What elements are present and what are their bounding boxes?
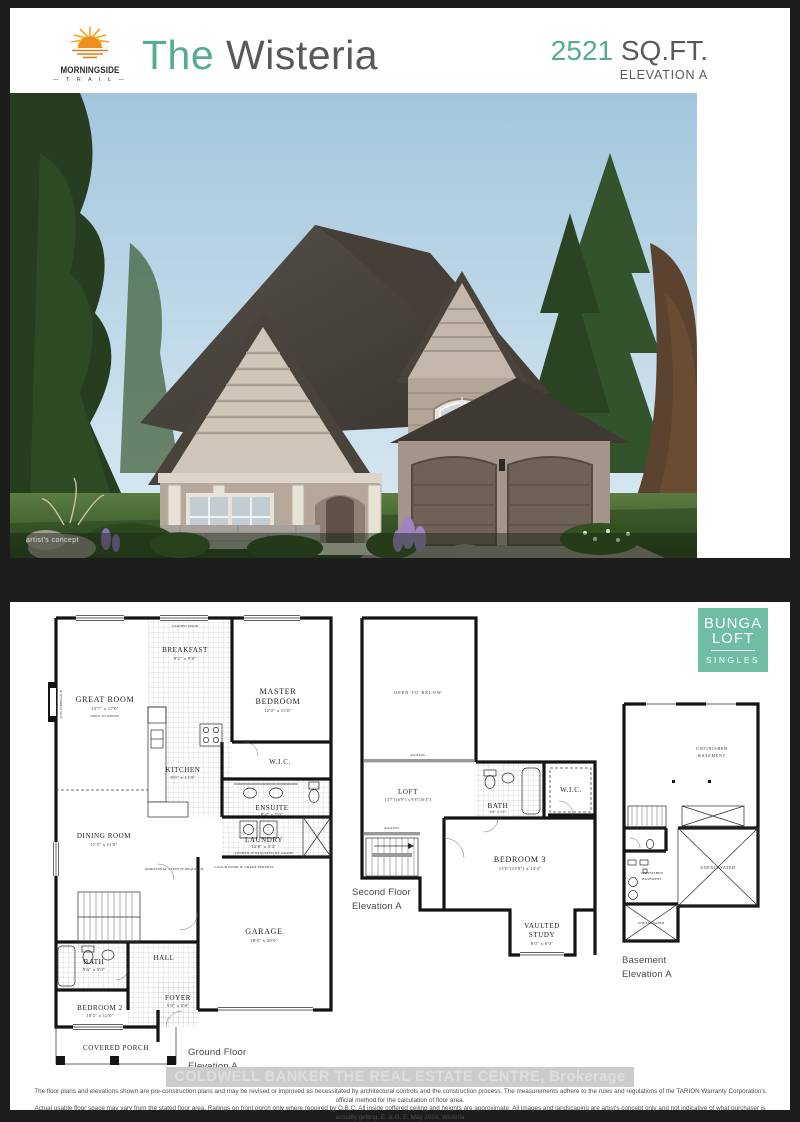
elevation-label: ELEVATION A — [551, 68, 708, 82]
disclaimer-text: The floor plans and elevations shown are… — [30, 1088, 770, 1122]
basement-caption: BasementElevation A — [622, 954, 672, 983]
wic2-label: W.I.C. — [560, 786, 582, 794]
main-stairs — [78, 892, 140, 942]
master-bedroom-label: MASTER — [260, 687, 297, 696]
unfinished-basement-label: UNFINISHED — [696, 746, 728, 751]
garage-label: GARAGE — [245, 927, 283, 936]
svg-text:8'0" x 6'0": 8'0" x 6'0" — [531, 941, 554, 946]
svg-text:13'7" x 17'0": 13'7" x 17'0" — [91, 706, 119, 711]
badge-line1: BUNGA — [704, 616, 762, 631]
hall-label: HALL — [153, 954, 174, 962]
great-room-label: GREAT ROOM — [76, 695, 135, 704]
svg-text:RAILING: RAILING — [384, 826, 400, 830]
loft-label: LOFT — [398, 788, 418, 796]
foyer-label: FOYER — [165, 994, 191, 1002]
utility-fixtures — [628, 839, 654, 899]
steps-note: ADDITIONAL STEPS IF REQUIRED — [144, 867, 203, 871]
porch-label: COVERED PORCH — [83, 1044, 149, 1052]
svg-text:BEDROOM: BEDROOM — [256, 697, 301, 706]
logo-trail-text: — T R A I L — — [50, 77, 130, 83]
badge-divider — [711, 650, 755, 651]
unexcavated-label: UNEXCAVATED — [700, 865, 735, 870]
page-title: The Wisteria — [142, 32, 378, 79]
svg-text:15'0"(13'0") x 14'4": 15'0"(13'0") x 14'4" — [499, 866, 541, 871]
bedroom2-label: BEDROOM 2 — [77, 1004, 123, 1012]
vaulted-study-label: VAULTED — [524, 922, 560, 930]
house-rendering: artist's concept — [10, 93, 697, 558]
page: { "colors": { "page_bg": "#1d1d1e", "acc… — [0, 0, 800, 1121]
svg-text:STUDY: STUDY — [529, 931, 555, 939]
svg-text:13'7"(16'9") x 9'8"(16'4"): 13'7"(16'9") x 9'8"(16'4") — [385, 798, 432, 802]
artists-concept-caption: artist's concept — [26, 537, 79, 544]
dining-room-label: DINING ROOM — [77, 832, 131, 840]
svg-text:12'0" x 15'0": 12'0" x 15'0" — [264, 708, 292, 713]
house-illustration — [10, 93, 697, 558]
svg-text:8'0" x 5'0": 8'0" x 5'0" — [490, 810, 507, 814]
badge-line3: SINGLES — [706, 655, 760, 665]
svg-text:RAILING: RAILING — [410, 753, 426, 757]
laundry-label: LAUNDRY — [245, 836, 283, 844]
sqft-block: 2521 SQ.FT. ELEVATION A — [551, 35, 708, 82]
svg-text:SUNKEN IF REQUIRED BY GRADE: SUNKEN IF REQUIRED BY GRADE — [235, 851, 294, 855]
sunrise-icon — [64, 26, 116, 60]
kitchen-label: KITCHEN — [166, 766, 201, 774]
wic-label: W.I.C. — [269, 758, 291, 766]
svg-text:12'8" x 5'4": 12'8" x 5'4" — [251, 844, 276, 849]
svg-text:18'4" x 20'0": 18'4" x 20'0" — [250, 938, 278, 943]
svg-text:9'0" x 11'0": 9'0" x 11'0" — [171, 775, 196, 780]
stairs-down — [366, 838, 418, 876]
badge-line2: LOFT — [712, 631, 754, 646]
cold-cellar — [682, 806, 744, 826]
svg-text:11'3" x 11'0": 11'3" x 11'0" — [90, 842, 117, 847]
garden-door-note: GARDEN DOOR — [172, 624, 199, 628]
brochure-top-panel: MORNINGSIDE — T R A I L — The Wisteria 2… — [10, 8, 790, 558]
svg-text:8'4" x 5'0": 8'4" x 5'0" — [261, 812, 284, 817]
svg-text:10'2" x 12'0": 10'2" x 12'0" — [86, 1013, 114, 1018]
bedroom3-label: BEDROOM 3 — [494, 855, 546, 864]
floorplan-panel: BUNGA LOFT SINGLES GAS FIREPLACE — [10, 602, 790, 1110]
sqft-value: 2521 SQ.FT. — [551, 35, 708, 67]
ground-floor-plan: GAS FIREPLACE — [48, 612, 338, 1080]
svg-text:9'2" x 9'8": 9'2" x 9'8" — [174, 656, 197, 661]
second-floor-caption: Second FloorElevation A — [352, 886, 411, 915]
morningside-trail-logo: MORNINGSIDE — T R A I L — — [50, 26, 130, 83]
svg-text:9'6" x 5'0": 9'6" x 5'0" — [83, 967, 106, 972]
logo-wordmark: MORNINGSIDE — [56, 65, 123, 76]
bath2-label: BATH — [488, 802, 509, 810]
svg-text:UNEXCAVATED: UNEXCAVATED — [638, 921, 665, 925]
brokerage-watermark: COLDWELL BANKER THE REAL ESTATE CENTRE, … — [10, 1068, 790, 1086]
open-to-below-label: OPEN TO BELOW — [394, 690, 442, 695]
svg-text:5'0" x 6'8": 5'0" x 6'8" — [167, 1003, 190, 1008]
porch-lamp — [499, 459, 505, 471]
fireplace-note: GAS FIREPLACE — [59, 690, 63, 718]
basement-plan: UNFINISHED BASEMENT UNFINISHED BASEMENT … — [616, 696, 766, 948]
ensuite-label: ENSUITE — [255, 804, 288, 812]
svg-text:UNFINISHED: UNFINISHED — [641, 871, 664, 875]
svg-text:BASEMENT: BASEMENT — [698, 753, 726, 758]
svg-text:OPEN TO ABOVE: OPEN TO ABOVE — [90, 714, 119, 718]
coach-door-note: COACH DOOR IF GRADE PERMITS — [214, 865, 273, 869]
svg-text:BASEMENT: BASEMENT — [642, 877, 663, 881]
bunga-loft-badge: BUNGA LOFT SINGLES — [698, 608, 768, 672]
bath-label: BATH — [84, 958, 105, 966]
breakfast-label: BREAKFAST — [162, 646, 208, 654]
